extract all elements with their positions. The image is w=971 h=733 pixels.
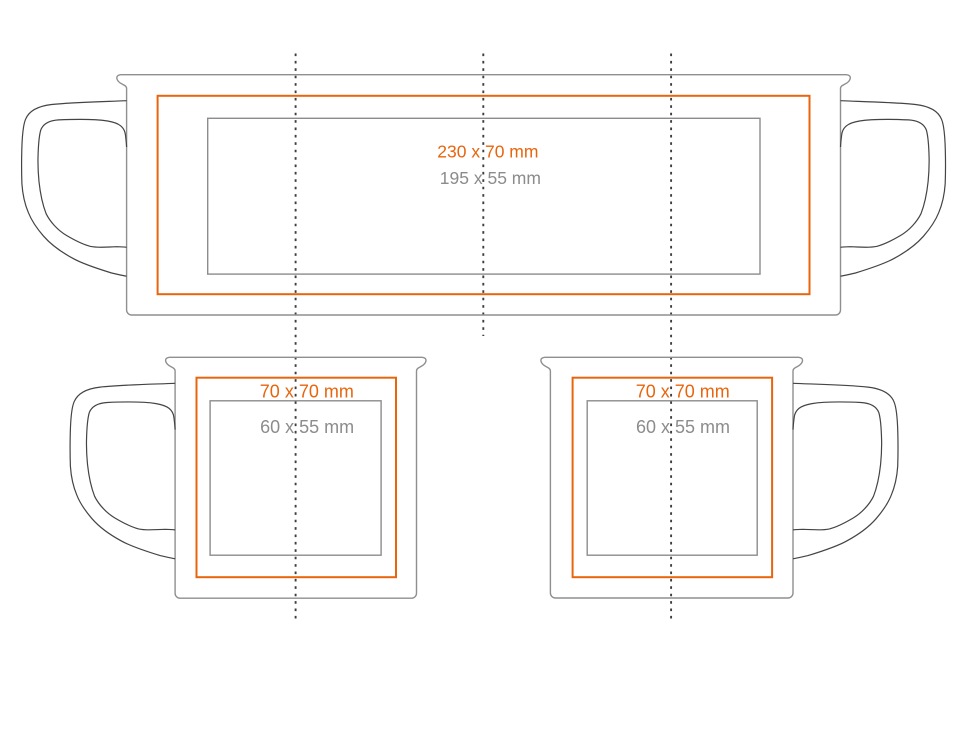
svg-text:60 x 55 mm: 60 x 55 mm (260, 417, 354, 437)
svg-text:195 x 55 mm: 195 x 55 mm (440, 168, 541, 188)
svg-text:230 x 70 mm: 230 x 70 mm (437, 142, 538, 162)
svg-text:70 x 70 mm: 70 x 70 mm (636, 382, 730, 402)
svg-text:60 x 55 mm: 60 x 55 mm (636, 417, 730, 437)
svg-text:70 x 70 mm: 70 x 70 mm (260, 382, 354, 402)
